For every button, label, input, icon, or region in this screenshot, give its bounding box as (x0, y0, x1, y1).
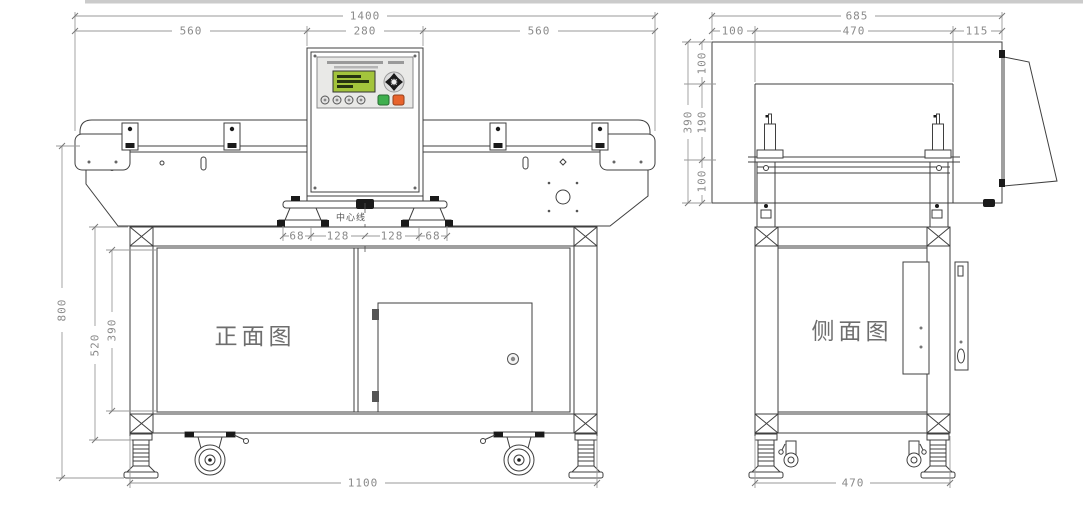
dim-text-685: 685 (846, 10, 869, 23)
caster-wheel (779, 441, 798, 467)
dim-text-390: 390 (106, 319, 119, 342)
bottom-beam (130, 414, 597, 433)
button-glyph (336, 99, 339, 102)
dim-text-560-left: 560 (180, 25, 203, 38)
x-brace (574, 414, 597, 433)
control-panel (317, 57, 413, 108)
screw-dot (640, 161, 643, 164)
dim-text-68-right: 68 (425, 230, 440, 243)
caster-wheel (481, 432, 545, 475)
dim-text-520: 520 (89, 334, 102, 357)
lcd-text-row (337, 85, 353, 88)
screw-dot (115, 161, 118, 164)
belt-clamp (490, 123, 506, 150)
centerline-label: 中心线 (336, 212, 366, 224)
button-glyph (360, 99, 363, 102)
chute-tab (999, 50, 1005, 58)
caster-wheel (907, 441, 926, 467)
leveling-foot (124, 434, 158, 478)
mount-foot-base (279, 220, 327, 227)
side-rail-bar (955, 262, 968, 370)
panel-screw (920, 346, 923, 349)
front-view: 中心线 正面图 (56, 10, 659, 490)
mount-foot-base (403, 220, 451, 227)
panel-screw (920, 327, 923, 330)
side-view: 侧面图 685 100 470 115 (682, 10, 1058, 490)
dim-text-1400: 1400 (350, 10, 381, 23)
button-glyph (348, 99, 351, 102)
screw-dot (576, 182, 579, 185)
leg-bolt (764, 204, 768, 208)
dim-text-280: 280 (354, 25, 377, 38)
dim-text-128-right: 128 (381, 230, 404, 243)
leg-hole (937, 166, 942, 171)
connector-block (983, 199, 995, 207)
dim-text-100-top: 100 (696, 52, 709, 75)
dimension-base-depth: 470 (752, 436, 953, 490)
mount-pad (291, 196, 300, 201)
leg-bracket (761, 210, 771, 218)
bottom-beam (755, 414, 950, 433)
belt-clamp (224, 123, 240, 150)
chute-tab (999, 179, 1005, 187)
leveling-foot (569, 434, 603, 478)
dpad-center-button[interactable] (391, 79, 397, 85)
discharge-chute (1004, 57, 1057, 186)
mount-foot-right (409, 208, 445, 220)
dim-text-800: 800 (56, 299, 69, 322)
panel-subheader-mark (334, 66, 378, 69)
leg-bracket (932, 210, 942, 218)
detector-head (307, 48, 423, 196)
x-brace (130, 227, 153, 246)
panel-header-text-mark (327, 61, 383, 64)
screw-dot (613, 161, 616, 164)
rail-bar-screw (960, 341, 963, 344)
top-beam (130, 227, 597, 246)
front-view-label: 正面图 (215, 324, 296, 350)
dim-text-470-top: 470 (843, 25, 866, 38)
dim-text-115: 115 (966, 25, 989, 38)
start-button[interactable] (378, 95, 389, 105)
mount-foot-left (285, 208, 321, 220)
leg-hole (764, 166, 769, 171)
button-glyph (324, 99, 327, 102)
dim-text-128-left: 128 (327, 230, 350, 243)
cabinet: 正面图 (130, 227, 597, 433)
belt-clamp (122, 123, 138, 150)
x-brace (755, 227, 778, 246)
side-machine-body (712, 42, 1057, 227)
corner-screw (414, 55, 417, 58)
x-brace (927, 227, 950, 246)
front-feet (124, 432, 603, 478)
side-cabinet: 侧面图 (755, 227, 968, 433)
dim-text-1100: 1100 (348, 477, 379, 490)
screw-dot (576, 210, 579, 213)
belt-clamp (592, 123, 608, 150)
leg-bolt (935, 204, 939, 208)
x-brace (574, 227, 597, 246)
x-brace (130, 414, 153, 433)
dim-text-390-side: 390 (682, 111, 695, 134)
door-hinge (372, 391, 379, 402)
screw-dot (548, 210, 551, 213)
dim-text-100-rear: 100 (722, 25, 745, 38)
caster-wheel (185, 432, 249, 475)
corner-screw (314, 55, 317, 58)
leveling-foot (749, 434, 783, 478)
screw-dot (88, 161, 91, 164)
dim-text-68-left: 68 (289, 230, 304, 243)
dim-text-560-right: 560 (528, 25, 551, 38)
dim-text-190: 190 (696, 111, 709, 134)
side-access-panel (903, 262, 929, 374)
side-feet (749, 434, 955, 478)
panel-header-text-mark (388, 61, 404, 64)
corner-screw (414, 187, 417, 190)
dimension-stand-inner-height: 390 (106, 247, 158, 414)
dim-text-100-bottom: 100 (696, 170, 709, 193)
drawing-canvas: 中心线 正面图 (0, 0, 1083, 507)
dimension-width-chain: 560 280 560 (72, 25, 658, 47)
lcd-text-row (337, 75, 361, 78)
dim-text-470-bottom: 470 (842, 477, 865, 490)
door-hinge (372, 309, 379, 320)
stop-button[interactable] (393, 95, 404, 105)
screen-edge-line (85, 0, 1083, 4)
mount-pad (430, 196, 439, 201)
dpad[interactable] (384, 72, 404, 92)
corner-screw (314, 187, 317, 190)
drawing-page: 中心线 正面图 (0, 0, 1083, 507)
top-beam (755, 227, 950, 246)
side-view-label: 侧面图 (812, 319, 893, 345)
screw-dot (548, 182, 551, 185)
x-brace (755, 414, 778, 433)
x-brace (927, 414, 950, 433)
door-lock-core (511, 357, 515, 361)
lcd-text-row (337, 80, 369, 83)
